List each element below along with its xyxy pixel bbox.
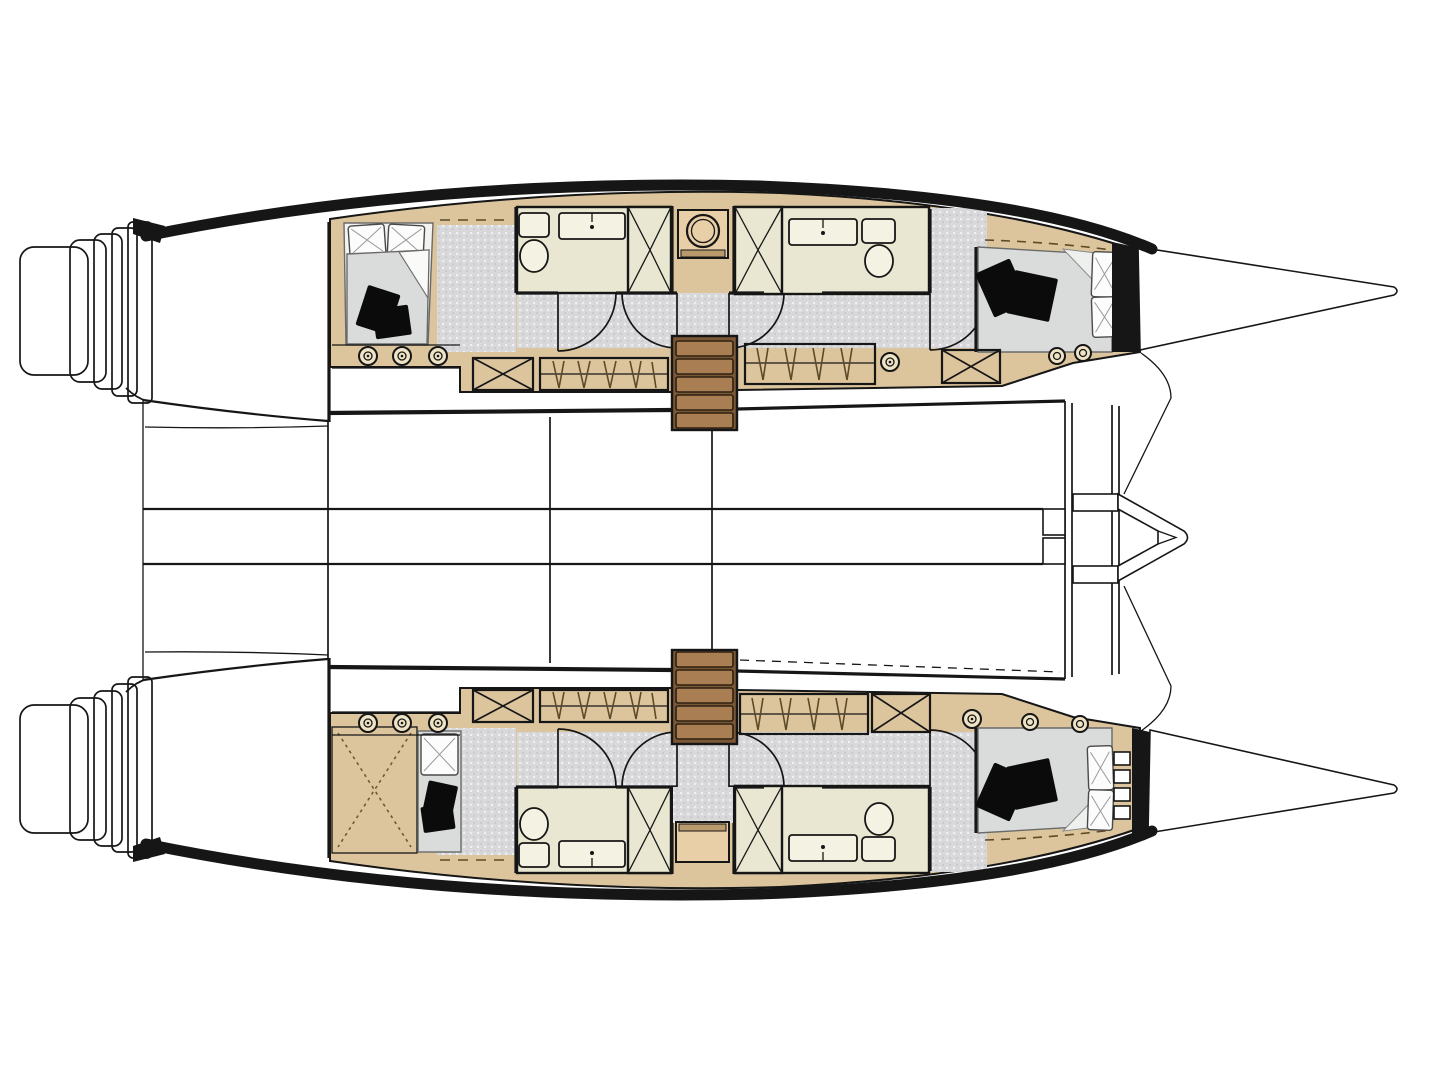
corridor-floor-gap [673, 787, 733, 823]
porthole [359, 714, 377, 732]
mast-step-block [1043, 538, 1065, 564]
porthole [1049, 348, 1065, 364]
forward-crossbeam [1073, 494, 1188, 583]
porthole [881, 353, 899, 371]
black-cushion [1006, 270, 1058, 322]
porthole [963, 710, 981, 728]
porthole [359, 347, 377, 365]
step-rung [1114, 806, 1130, 819]
forward-cabin [975, 728, 1130, 840]
bow [1148, 730, 1397, 833]
console [676, 822, 729, 862]
starboard-hull [20, 650, 1397, 895]
porthole [429, 347, 447, 365]
catamaran-deck-plan [0, 0, 1440, 1080]
forward-cabin [975, 240, 1118, 352]
forward-bulkhead [1132, 728, 1150, 838]
forward-bulkhead [1112, 242, 1140, 352]
foredeck-line-top [1124, 353, 1171, 494]
porthole [1022, 714, 1038, 730]
step-rung [1114, 770, 1130, 783]
black-cushion [420, 803, 455, 833]
porthole [393, 714, 411, 732]
drawer [681, 250, 725, 257]
washer-console [678, 210, 728, 258]
foredeck-line-bottom [1124, 586, 1171, 731]
step-rung [1114, 752, 1130, 765]
black-cushion [372, 305, 412, 340]
deck-plan-stage [0, 0, 1440, 1080]
transom-top-curve [143, 400, 328, 421]
deck-seams [328, 417, 712, 663]
porthole [1075, 345, 1091, 361]
coachroof-front-posts [1065, 401, 1119, 679]
port-swim-steps [20, 218, 165, 403]
port-hull [20, 185, 1397, 430]
central-walkway [143, 509, 1043, 564]
black-cushion [1006, 758, 1058, 810]
starboard-swim-steps [20, 677, 165, 862]
transom-bottom-curve [143, 659, 328, 680]
mast-step-block [1043, 509, 1065, 535]
step-rung [1114, 788, 1130, 801]
bridge-deck [143, 353, 1188, 731]
porthole [429, 714, 447, 732]
porthole [1072, 716, 1088, 732]
porthole [393, 347, 411, 365]
drawer [679, 824, 726, 831]
bow [1138, 247, 1397, 350]
